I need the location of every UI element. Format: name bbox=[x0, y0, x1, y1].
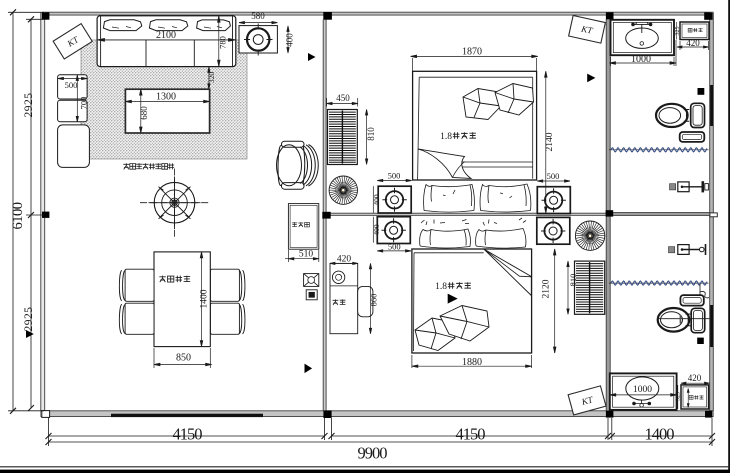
svg-text:4150: 4150 bbox=[173, 425, 203, 444]
svg-text:1400: 1400 bbox=[200, 289, 210, 308]
svg-text:1.8: 1.8 bbox=[435, 282, 447, 292]
svg-text:1400: 1400 bbox=[645, 425, 675, 444]
svg-text:4150: 4150 bbox=[456, 425, 486, 444]
svg-text:2140: 2140 bbox=[545, 132, 555, 151]
svg-text:680: 680 bbox=[139, 106, 149, 120]
svg-text:400: 400 bbox=[285, 33, 295, 47]
svg-text:1870: 1870 bbox=[462, 47, 482, 58]
svg-text:2120: 2120 bbox=[542, 279, 552, 298]
svg-text:420: 420 bbox=[688, 373, 702, 383]
svg-text:9900: 9900 bbox=[358, 444, 388, 463]
svg-text:1.8: 1.8 bbox=[440, 132, 452, 142]
svg-text:780: 780 bbox=[218, 36, 228, 49]
svg-text:500: 500 bbox=[65, 80, 78, 90]
svg-text:1880: 1880 bbox=[462, 357, 482, 368]
svg-text:420: 420 bbox=[686, 38, 700, 48]
svg-text:420: 420 bbox=[337, 255, 352, 265]
svg-text:1000: 1000 bbox=[631, 54, 651, 65]
svg-text:860: 860 bbox=[369, 294, 379, 307]
svg-text:450: 450 bbox=[336, 93, 350, 103]
svg-text:2925: 2925 bbox=[23, 93, 35, 118]
svg-text:810: 810 bbox=[568, 274, 578, 287]
svg-text:500: 500 bbox=[547, 171, 560, 181]
svg-text:6100: 6100 bbox=[10, 202, 26, 229]
svg-text:510: 510 bbox=[299, 250, 314, 260]
svg-text:500: 500 bbox=[388, 241, 401, 251]
svg-text:1000: 1000 bbox=[633, 385, 652, 395]
svg-text:400: 400 bbox=[372, 194, 381, 206]
svg-text:325: 325 bbox=[676, 392, 682, 401]
svg-text:400: 400 bbox=[372, 224, 381, 236]
svg-text:320: 320 bbox=[207, 72, 216, 84]
svg-text:810: 810 bbox=[366, 127, 376, 141]
svg-text:2925: 2925 bbox=[23, 307, 35, 332]
svg-text:2100: 2100 bbox=[156, 30, 176, 41]
svg-text:580: 580 bbox=[251, 11, 265, 21]
svg-text:500: 500 bbox=[388, 171, 401, 181]
svg-text:700: 700 bbox=[79, 97, 89, 110]
svg-text:325: 325 bbox=[675, 27, 681, 36]
svg-text:1300: 1300 bbox=[156, 92, 176, 103]
svg-text:850: 850 bbox=[176, 353, 191, 364]
